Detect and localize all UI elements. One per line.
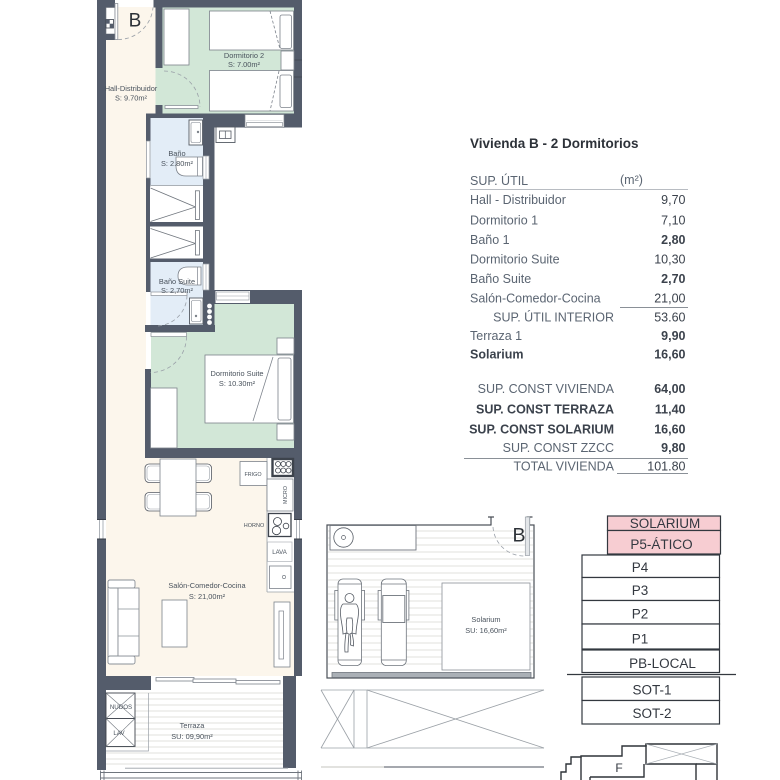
svg-text:SUP. CONST TERRAZA: SUP. CONST TERRAZA — [476, 403, 614, 417]
svg-text:21,00: 21,00 — [654, 292, 685, 306]
svg-text:53.60: 53.60 — [654, 311, 685, 325]
svg-text:S: 21,00m²: S: 21,00m² — [189, 592, 226, 601]
svg-text:Dormitorio Suite: Dormitorio Suite — [211, 369, 264, 378]
svg-text:SUP. CONST VIVIENDA: SUP. CONST VIVIENDA — [478, 382, 615, 396]
svg-text:NUDOS: NUDOS — [110, 704, 132, 711]
svg-text:2,70: 2,70 — [661, 272, 685, 286]
svg-text:SOLARIUM: SOLARIUM — [630, 516, 701, 531]
svg-text:Baño Suite: Baño Suite — [159, 277, 195, 286]
svg-text:SUP. CONST SOLARIUM: SUP. CONST SOLARIUM — [469, 423, 614, 437]
svg-text:Hall - Distribuidor: Hall - Distribuidor — [470, 193, 566, 207]
svg-text:P2: P2 — [632, 607, 649, 622]
svg-text:S: 10.30m²: S: 10.30m² — [219, 379, 256, 388]
svg-text:SOT-2: SOT-2 — [632, 706, 671, 721]
svg-text:Dormitorio 1: Dormitorio 1 — [470, 214, 538, 228]
svg-text:9,90: 9,90 — [661, 329, 685, 343]
svg-text:S: 2.80m²: S: 2.80m² — [161, 159, 194, 168]
svg-text:SOT-1: SOT-1 — [632, 683, 671, 698]
svg-text:Terraza: Terraza — [180, 721, 206, 730]
svg-text:11,40: 11,40 — [655, 403, 686, 417]
svg-text:Dormitorio 2: Dormitorio 2 — [224, 51, 264, 60]
svg-text:9,70: 9,70 — [661, 193, 685, 207]
svg-text:SUP. ÚTIL INTERIOR: SUP. ÚTIL INTERIOR — [493, 310, 614, 325]
svg-text:64,00: 64,00 — [654, 382, 685, 396]
svg-text:SUP. CONST ZZCC: SUP. CONST ZZCC — [503, 441, 614, 455]
svg-text:Dormitorio Suite: Dormitorio Suite — [470, 253, 560, 267]
svg-text:S: 7.00m²: S: 7.00m² — [228, 60, 261, 69]
svg-text:Solarium: Solarium — [471, 615, 500, 624]
svg-text:Baño Suite: Baño Suite — [470, 272, 531, 286]
svg-text:Salón-Comedor-Cocina: Salón-Comedor-Cocina — [470, 292, 601, 306]
svg-text:P4: P4 — [632, 560, 649, 575]
svg-text:SUP. ÚTIL: SUP. ÚTIL — [470, 173, 528, 188]
svg-text:7,10: 7,10 — [661, 214, 685, 228]
svg-text:Hall-Distribuidor: Hall-Distribuidor — [105, 84, 158, 93]
svg-text:Vivienda B - 2 Dormitorios: Vivienda B - 2 Dormitorios — [470, 136, 639, 151]
svg-text:Salón-Comedor-Cocina: Salón-Comedor-Cocina — [168, 581, 246, 590]
svg-text:PB-LOCAL: PB-LOCAL — [629, 656, 696, 671]
svg-text:Solarium: Solarium — [470, 348, 524, 362]
svg-text:F: F — [615, 761, 622, 775]
svg-text:16,60: 16,60 — [654, 348, 685, 362]
svg-text:101.80: 101.80 — [647, 460, 685, 474]
svg-text:Baño: Baño — [168, 149, 185, 158]
svg-text:(m²): (m²) — [620, 173, 643, 187]
svg-text:16,60: 16,60 — [654, 423, 685, 437]
svg-text:FRIGO: FRIGO — [244, 472, 261, 478]
svg-text:SU: 16,60m²: SU: 16,60m² — [465, 626, 507, 635]
svg-text:10,30: 10,30 — [654, 253, 685, 267]
svg-text:S: 2,70m²: S: 2,70m² — [161, 286, 194, 295]
svg-text:P5-ÁTICO: P5-ÁTICO — [630, 537, 692, 552]
svg-text:2,80: 2,80 — [661, 233, 685, 247]
svg-text:B: B — [129, 11, 142, 32]
svg-text:Baño 1: Baño 1 — [470, 233, 510, 247]
svg-text:P3: P3 — [632, 583, 649, 598]
svg-text:TOTAL VIVIENDA: TOTAL VIVIENDA — [514, 460, 615, 474]
svg-text:9,80: 9,80 — [661, 441, 685, 455]
svg-text:MICRO: MICRO — [283, 486, 289, 504]
svg-text:SU: 09,90m²: SU: 09,90m² — [171, 732, 213, 741]
svg-text:Terraza 1: Terraza 1 — [470, 329, 522, 343]
svg-text:LAV: LAV — [113, 730, 125, 737]
svg-text:LAVA: LAVA — [272, 550, 286, 556]
svg-text:P1: P1 — [632, 632, 649, 647]
svg-text:S: 9.70m²: S: 9.70m² — [115, 94, 148, 103]
svg-text:HORNO: HORNO — [244, 523, 265, 529]
svg-text:B: B — [512, 525, 525, 547]
